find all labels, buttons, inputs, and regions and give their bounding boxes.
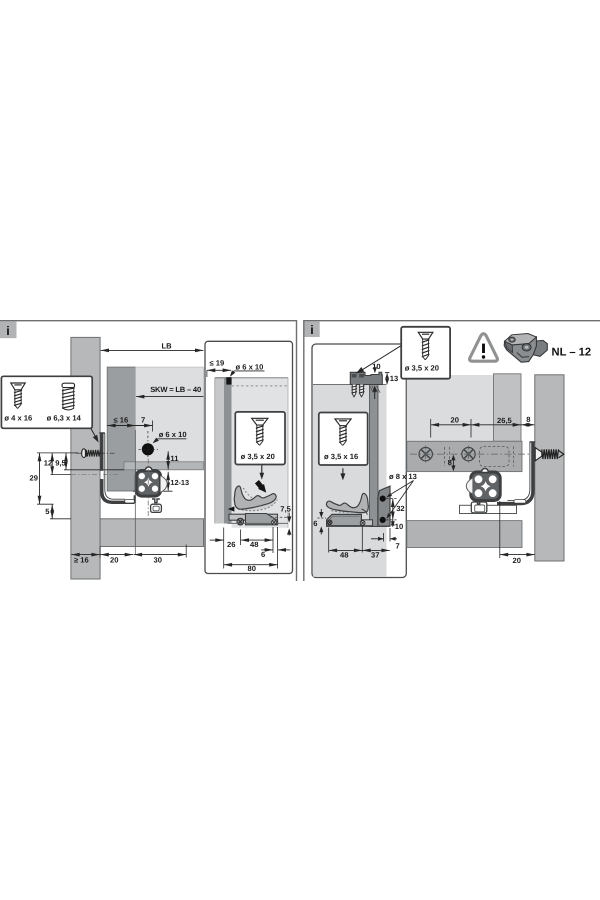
svg-text:8: 8	[526, 415, 530, 424]
svg-text:≤ 19: ≤ 19	[210, 359, 225, 368]
svg-text:20: 20	[451, 415, 459, 424]
svg-text:30: 30	[154, 556, 162, 565]
svg-text:6: 6	[261, 550, 265, 559]
svg-text:ø 3,5 x 20: ø 3,5 x 20	[405, 363, 439, 372]
svg-text:12-13: 12-13	[170, 478, 189, 487]
svg-text:i: i	[310, 323, 313, 337]
svg-text:13: 13	[390, 374, 398, 383]
svg-text:29: 29	[30, 474, 38, 483]
svg-text:ø 6 x 10: ø 6 x 10	[159, 430, 187, 439]
svg-text:ø 6,3 x 14: ø 6,3 x 14	[47, 413, 82, 422]
svg-text:ø 3,5 x 16: ø 3,5 x 16	[324, 452, 358, 461]
svg-text:26: 26	[227, 540, 235, 549]
svg-text:i: i	[6, 324, 9, 338]
svg-text:LB: LB	[162, 342, 173, 351]
svg-text:ø 3,5 x 20: ø 3,5 x 20	[241, 452, 275, 461]
svg-text:≤ 16: ≤ 16	[114, 416, 129, 425]
svg-text:12: 12	[44, 459, 52, 468]
svg-text:11: 11	[170, 454, 179, 463]
svg-text:37: 37	[371, 551, 379, 560]
svg-text:80: 80	[248, 564, 256, 573]
svg-text:9,5: 9,5	[55, 459, 66, 468]
svg-text:SKW = LB – 40: SKW = LB – 40	[150, 385, 201, 394]
svg-text:ø 4 x 16: ø 4 x 16	[4, 413, 32, 422]
svg-text:20: 20	[513, 556, 521, 565]
svg-text:7: 7	[141, 416, 145, 425]
svg-text:≥ 16: ≥ 16	[74, 556, 89, 565]
svg-text:8: 8	[448, 458, 452, 467]
svg-text:20: 20	[110, 556, 118, 565]
svg-text:6: 6	[313, 519, 317, 528]
svg-text:ø 8 x 13: ø 8 x 13	[389, 472, 417, 481]
svg-text:NL – 12: NL – 12	[552, 346, 592, 358]
svg-text:ø 6 x 10: ø 6 x 10	[236, 363, 264, 372]
svg-text:10: 10	[395, 522, 403, 531]
svg-text:26,5: 26,5	[497, 416, 513, 425]
svg-text:7: 7	[396, 542, 400, 551]
svg-text:7,5: 7,5	[280, 505, 291, 514]
svg-text:10: 10	[372, 362, 380, 371]
svg-text:48: 48	[250, 540, 258, 549]
svg-text:32: 32	[396, 504, 404, 513]
svg-text:48: 48	[340, 551, 348, 560]
